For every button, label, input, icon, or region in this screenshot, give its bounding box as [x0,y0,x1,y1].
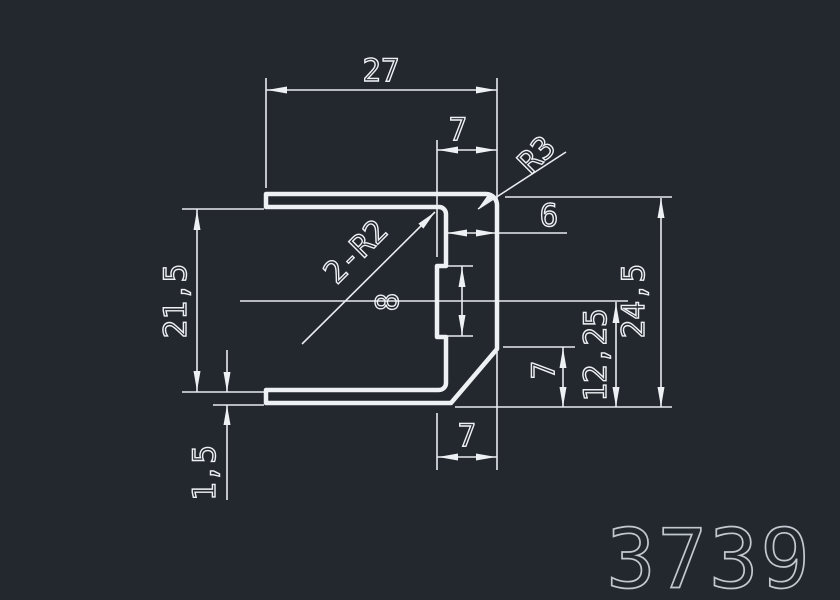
dim-notch-height: 8 [370,293,406,312]
dim-wall-thickness: 1,5 [187,445,223,501]
dim-corner-radius: R3 [511,129,563,181]
profile-drawing: 27 7 R3 6 2-R2 8 21,5 1,5 24,5 12,25 7 7… [0,0,840,600]
dim-top-web-width: 7 [449,112,468,148]
dim-overall-height: 24,5 [616,264,652,339]
dim-chamfer-horizontal: 7 [458,418,477,454]
dim-overall-width: 27 [362,53,399,89]
part-number: 3739 [606,513,811,600]
dim-web-thickness: 6 [540,198,559,234]
dim-inner-fillets: 2-R2 [317,213,395,291]
dimension-labels: 27 7 R3 6 2-R2 8 21,5 1,5 24,5 12,25 7 7 [158,53,652,501]
dim-chamfer-vertical: 7 [526,361,562,380]
extension-lines [182,78,672,470]
dim-centerline-to-bottom: 12,25 [578,308,614,401]
dim-inner-height: 21,5 [158,264,194,339]
cad-drawing-canvas: 27 7 R3 6 2-R2 8 21,5 1,5 24,5 12,25 7 7… [0,0,840,600]
